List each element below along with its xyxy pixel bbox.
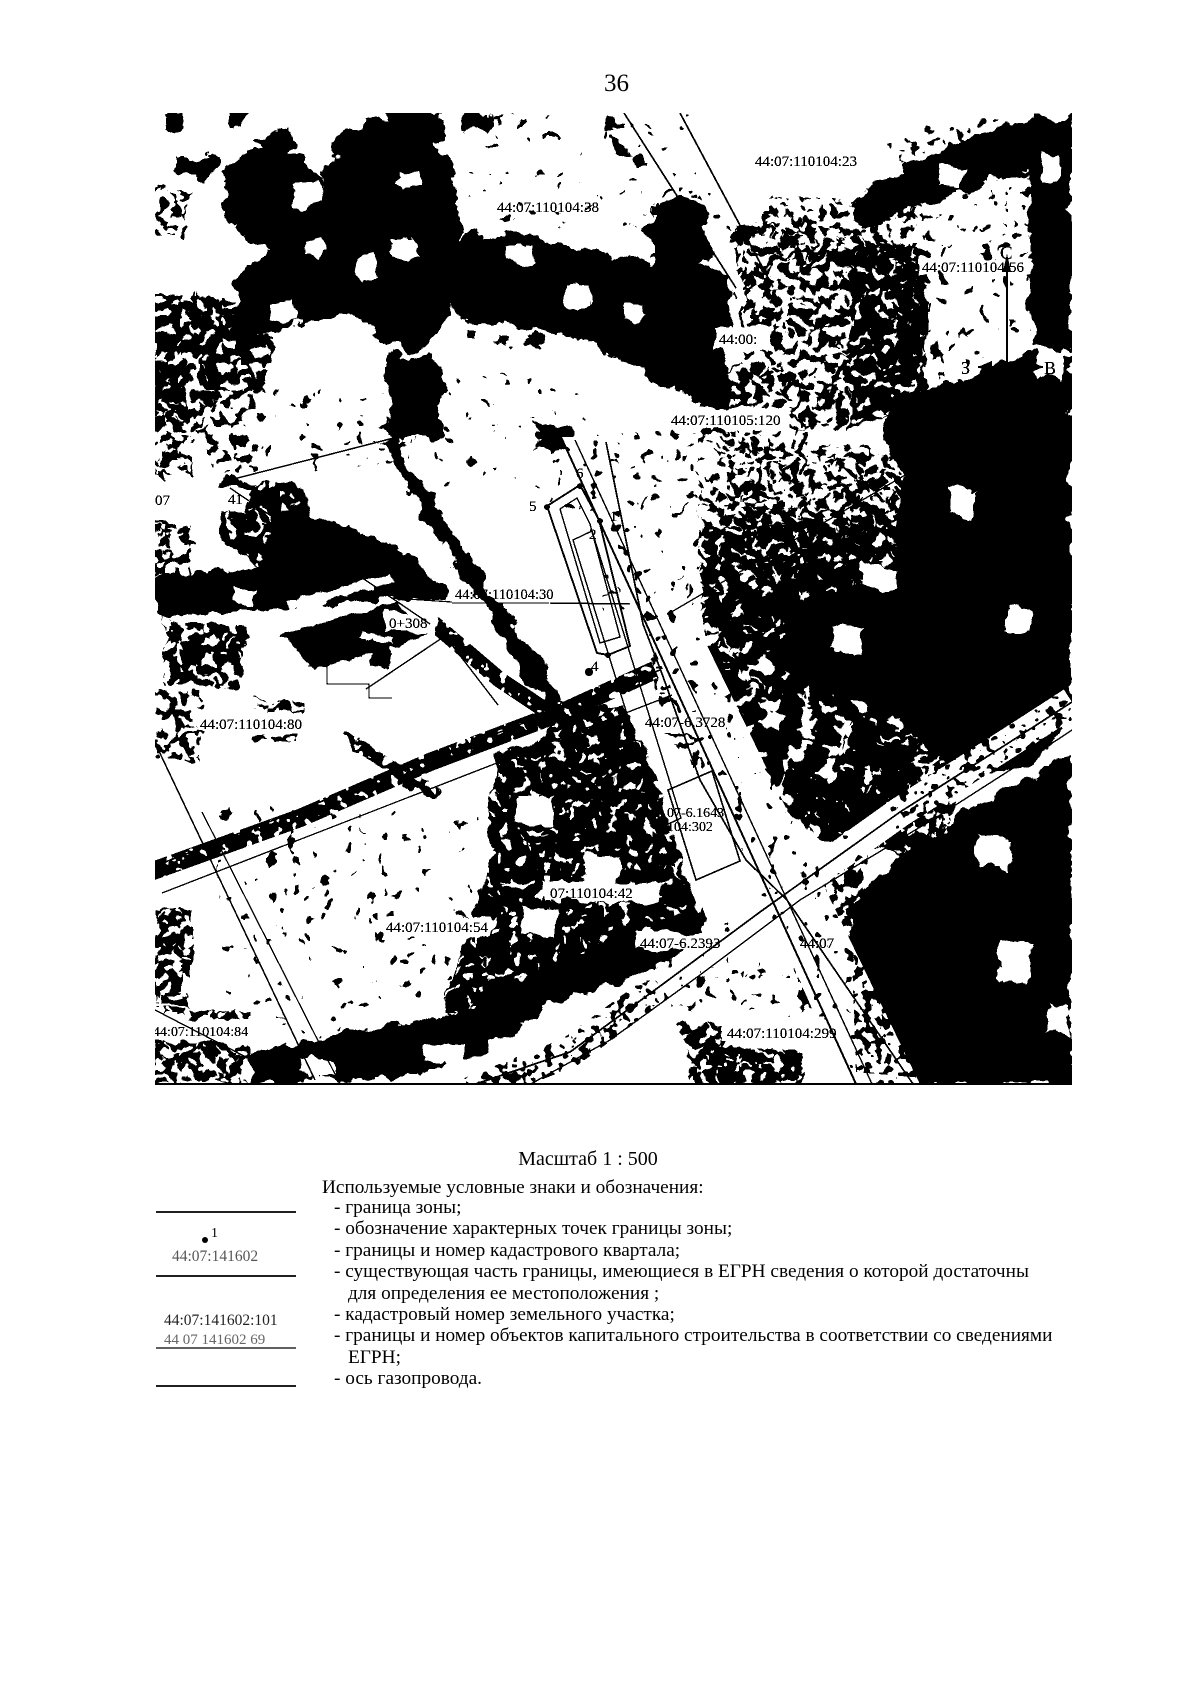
svg-text:44:07:110104:54: 44:07:110104:54: [386, 920, 488, 936]
svg-text:41: 41: [228, 492, 243, 508]
svg-text:44:07:141602:101: 44:07:141602:101: [164, 1312, 278, 1329]
svg-text:В: В: [1044, 358, 1056, 378]
svg-text:З: З: [961, 358, 970, 378]
svg-text:07:110104:42: 07:110104:42: [550, 886, 633, 902]
svg-text:1: 1: [211, 1226, 218, 1241]
svg-text:44:07:110104:30: 44:07:110104:30: [455, 587, 554, 603]
svg-text:44:07-6.3728: 44:07-6.3728: [645, 715, 725, 731]
svg-text:44:07:110104:80: 44:07:110104:80: [200, 717, 302, 733]
svg-text:1: 1: [610, 509, 618, 525]
svg-text:5: 5: [529, 499, 537, 515]
svg-text:44 07 141602 69: 44 07 141602 69: [164, 1332, 265, 1348]
svg-text:0+308: 0+308: [389, 616, 427, 632]
svg-text:44:07:110104:38: 44:07:110104:38: [497, 200, 599, 216]
svg-text:44:07: 44:07: [800, 936, 835, 952]
svg-text:0104:302: 0104:302: [660, 820, 713, 835]
svg-text:2: 2: [589, 527, 597, 543]
svg-text:4: 4: [591, 659, 599, 675]
svg-text:44:07-6.2393: 44:07-6.2393: [640, 936, 720, 952]
svg-text:6: 6: [576, 466, 584, 482]
svg-text:С: С: [1000, 243, 1013, 264]
svg-text:07-6.1643: 07-6.1643: [667, 806, 724, 821]
svg-text:07: 07: [155, 493, 171, 509]
svg-text:44:07:110104:299: 44:07:110104:299: [727, 1026, 836, 1042]
svg-text:44:07:110104:84: 44:07:110104:84: [153, 1025, 248, 1040]
svg-text:44:07:110105:120: 44:07:110105:120: [671, 413, 780, 429]
svg-text:44:00:: 44:00:: [719, 332, 757, 348]
svg-text:44:07:141602: 44:07:141602: [172, 1248, 258, 1265]
svg-text:44:07:110104:23: 44:07:110104:23: [755, 154, 857, 170]
